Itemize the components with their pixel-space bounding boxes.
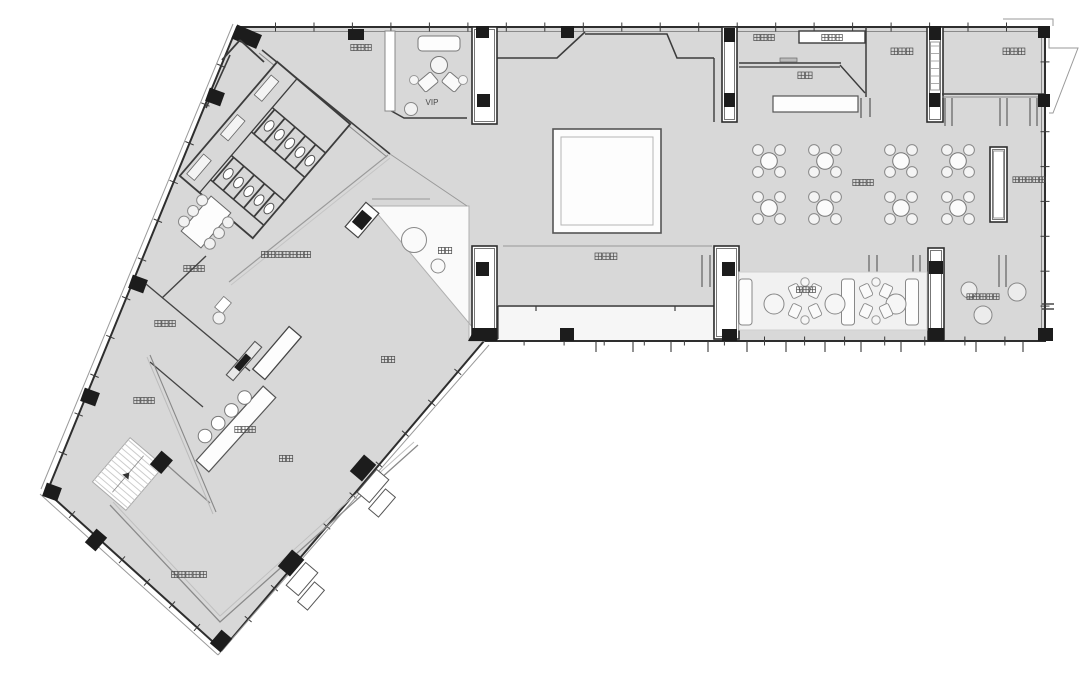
svg-text:VIP: VIP [426, 98, 439, 107]
